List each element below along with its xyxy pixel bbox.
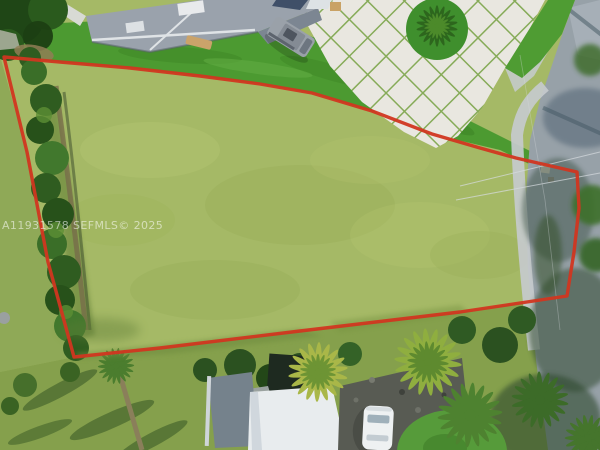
aerial-photo: A11931578 SEFMLS© 2025 [0, 0, 600, 450]
aerial-photo-canvas: A11931578 SEFMLS© 2025 [0, 0, 600, 450]
car-windshield [367, 414, 389, 423]
watermark-text: A11931578 SEFMLS© 2025 [2, 219, 163, 232]
mls-watermark: A11931578 SEFMLS© 2025 [2, 219, 163, 232]
south-house-white-roof [248, 386, 346, 450]
storage-box [330, 2, 341, 11]
